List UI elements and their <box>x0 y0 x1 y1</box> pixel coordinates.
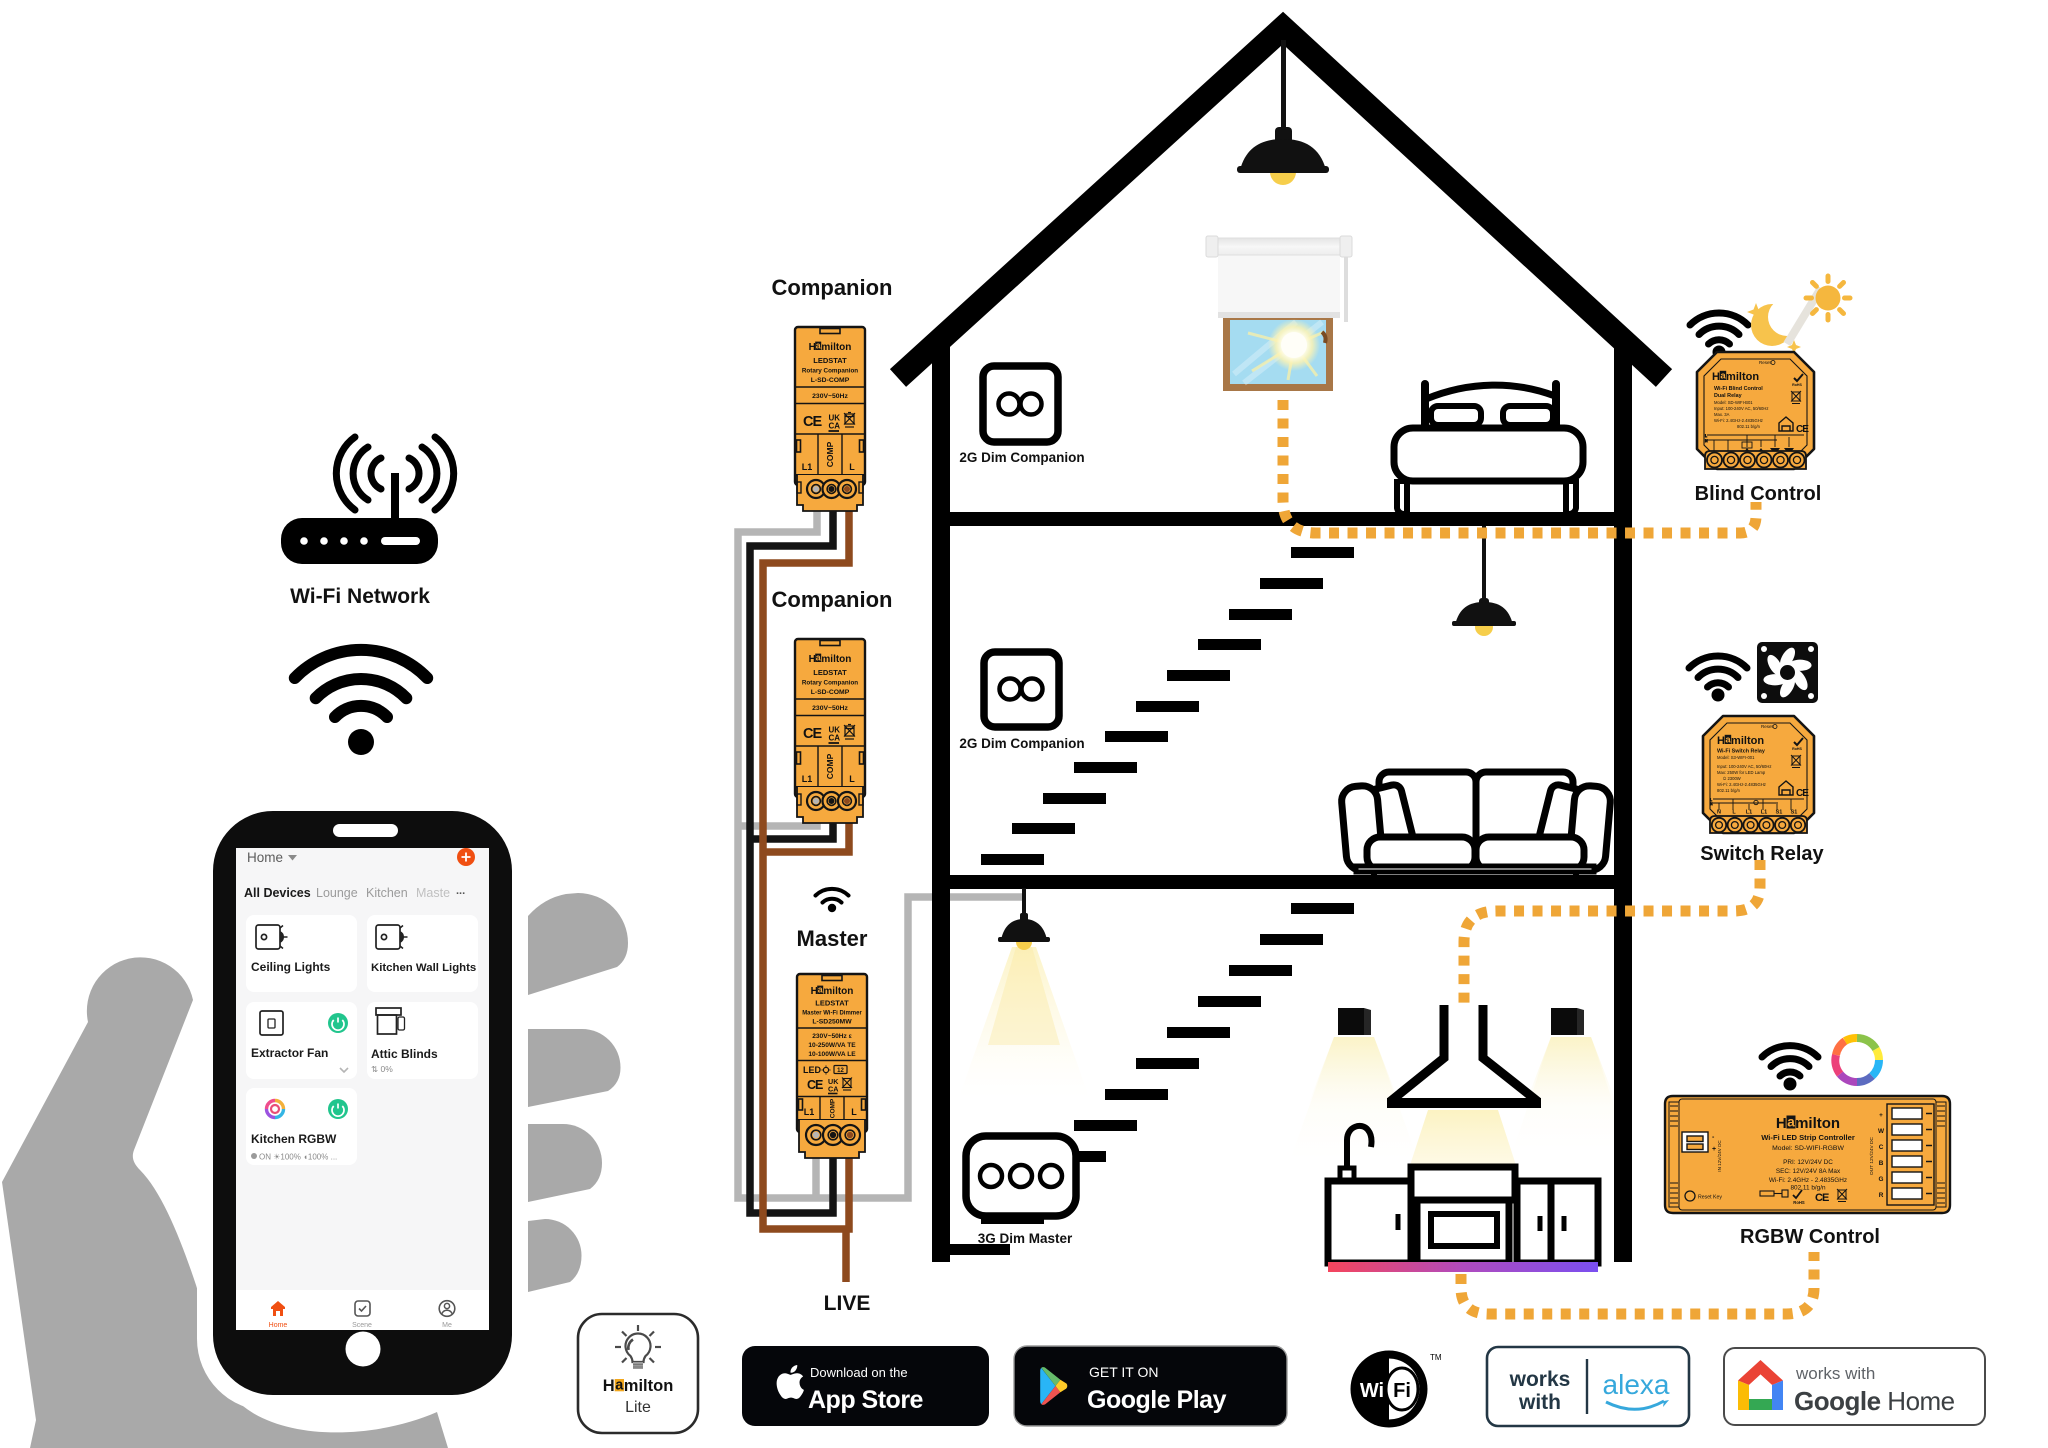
svg-text:⇅ 0%: ⇅ 0% <box>371 1064 393 1074</box>
svg-text:2G Dim Companion: 2G Dim Companion <box>959 450 1084 465</box>
svg-text:PRI: 12V/24V DC: PRI: 12V/24V DC <box>1783 1159 1833 1166</box>
svg-text:10-250W/VA TE: 10-250W/VA TE <box>808 1042 856 1049</box>
svg-text:L1: L1 <box>1761 810 1767 816</box>
svg-text:Ceiling Lights: Ceiling Lights <box>251 960 331 974</box>
svg-text:alexa: alexa <box>1603 1369 1670 1400</box>
svg-text:Model: SD-WIFI-RGBW: Model: SD-WIFI-RGBW <box>1772 1145 1844 1152</box>
svg-text:Wi-Fi Network: Wi-Fi Network <box>290 585 430 608</box>
svg-text:LEDSTAT: LEDSTAT <box>813 668 847 677</box>
svg-text:works with: works with <box>1795 1364 1875 1383</box>
svg-text:Model: S3-WIFI-001: Model: S3-WIFI-001 <box>1717 755 1755 760</box>
svg-text:L1: L1 <box>802 774 813 784</box>
svg-text:Input: 100-240V AC, 50/60Hz: Input: 100-240V AC, 50/60Hz <box>1717 764 1771 769</box>
svg-text:2G Dim Companion: 2G Dim Companion <box>959 736 1084 751</box>
svg-text:CE: CE <box>803 414 822 430</box>
svg-text:Input: 100-240V AC, 50/60Hz: Input: 100-240V AC, 50/60Hz <box>1714 406 1768 411</box>
svg-text:All Devices: All Devices <box>244 886 311 900</box>
svg-text:a: a <box>1725 734 1731 745</box>
svg-text:R: R <box>1879 1192 1884 1199</box>
svg-text:L: L <box>849 462 855 472</box>
svg-text:CA: CA <box>829 734 841 743</box>
svg-text:+: + <box>1879 1112 1883 1119</box>
svg-text:CE: CE <box>1815 1192 1829 1204</box>
svg-text:Scene: Scene <box>352 1322 372 1329</box>
svg-text:L: L <box>1705 434 1707 438</box>
svg-text:230V~50Hz: 230V~50Hz <box>812 393 848 400</box>
svg-text:Max. 3A: Max. 3A <box>1714 412 1730 417</box>
svg-text:+: + <box>1712 1146 1716 1153</box>
svg-text:S1: S1 <box>1776 810 1783 816</box>
svg-text:...: ... <box>456 885 465 897</box>
svg-text:Maste: Maste <box>416 886 450 900</box>
svg-text:Wi-Fi LED Strip Controller: Wi-Fi LED Strip Controller <box>1761 1133 1855 1142</box>
svg-text:CE: CE <box>1796 788 1809 799</box>
svg-text:LEDSTAT: LEDSTAT <box>813 356 847 365</box>
svg-text:Google Play: Google Play <box>1087 1386 1227 1414</box>
svg-text:COMP: COMP <box>830 1098 837 1118</box>
svg-text:LIVE: LIVE <box>824 1292 871 1315</box>
svg-text:Kitchen RGBW: Kitchen RGBW <box>251 1132 337 1146</box>
svg-text:L-SD250MW: L-SD250MW <box>812 1019 852 1026</box>
svg-text:RoHS: RoHS <box>1792 383 1802 387</box>
svg-text:G: G <box>1879 1176 1884 1183</box>
svg-text:a: a <box>1720 370 1726 381</box>
svg-text:Attic Blinds: Attic Blinds <box>371 1047 438 1061</box>
svg-text:W: W <box>1878 1128 1885 1135</box>
svg-text:3G Dim Master: 3G Dim Master <box>978 1231 1073 1246</box>
svg-text:a: a <box>816 653 821 663</box>
svg-text:Companion: Companion <box>772 275 893 300</box>
svg-text:Kitchen Wall Lights: Kitchen Wall Lights <box>371 962 476 974</box>
svg-text:Rotary Companion: Rotary Companion <box>802 680 858 687</box>
svg-text:Lite: Lite <box>625 1399 651 1416</box>
svg-text:L1: L1 <box>804 1107 815 1117</box>
svg-text:Master: Master <box>797 926 868 951</box>
svg-text:802.11 b/g/n: 802.11 b/g/n <box>1790 1185 1826 1192</box>
svg-text:Kitchen: Kitchen <box>366 886 408 900</box>
svg-text:Reset Key: Reset Key <box>1698 1195 1722 1201</box>
svg-text:COMP: COMP <box>825 441 835 467</box>
svg-text:Reset: Reset <box>1759 360 1772 365</box>
svg-text:L: L <box>851 1107 857 1117</box>
svg-text:Hamilton: Hamilton <box>1712 371 1759 383</box>
svg-text:Wi-Fi: 2.4GHz-2.4835GHz: Wi-Fi: 2.4GHz-2.4835GHz <box>1717 782 1766 787</box>
svg-text:a: a <box>1787 1115 1795 1130</box>
svg-text:ON ☀100% ◖100% ...: ON ☀100% ◖100% ... <box>259 1153 337 1162</box>
svg-text:CA: CA <box>828 1085 838 1094</box>
svg-text:with: with <box>1518 1391 1561 1414</box>
svg-text:CE: CE <box>803 726 822 742</box>
svg-text:N: N <box>1717 810 1721 816</box>
svg-text:Lounge: Lounge <box>316 886 358 900</box>
svg-text:LED: LED <box>803 1065 822 1075</box>
svg-text:IN 12V/24V DC: IN 12V/24V DC <box>1717 1140 1722 1172</box>
svg-text:802.11 b/g/n: 802.11 b/g/n <box>1737 424 1761 429</box>
svg-text:L1: L1 <box>802 462 813 472</box>
svg-text:⏻ 2300W: ⏻ 2300W <box>1723 776 1741 781</box>
svg-text:B: B <box>1879 1160 1884 1167</box>
svg-text:L-SD-COMP: L-SD-COMP <box>811 689 850 696</box>
svg-text:TM: TM <box>1430 1353 1442 1362</box>
svg-text:Wi-Fi: 2.4GHz-2.4835GHz: Wi-Fi: 2.4GHz-2.4835GHz <box>1714 418 1763 423</box>
svg-text:LEDSTAT: LEDSTAT <box>815 999 849 1008</box>
svg-text:Google Home: Google Home <box>1794 1386 1955 1416</box>
svg-text:Master Wi-Fi Dimmer: Master Wi-Fi Dimmer <box>802 1011 862 1017</box>
svg-text:CA: CA <box>829 422 841 431</box>
svg-text:GET IT ON: GET IT ON <box>1089 1364 1159 1380</box>
svg-text:12: 12 <box>837 1068 844 1074</box>
svg-text:L-SD-COMP: L-SD-COMP <box>811 377 850 384</box>
svg-text:230V~50Hz: 230V~50Hz <box>812 705 848 712</box>
svg-text:Max: 250W for LED Lamp: Max: 250W for LED Lamp <box>1717 770 1766 775</box>
svg-text:works: works <box>1509 1368 1571 1391</box>
svg-text:Switch Relay: Switch Relay <box>1700 843 1824 865</box>
svg-text:Fi: Fi <box>1393 1380 1411 1402</box>
svg-text:L1: L1 <box>1746 810 1752 816</box>
svg-text:CE: CE <box>1796 424 1809 435</box>
svg-text:Wi-Fi: 2.4GHz - 2.4835GHz: Wi-Fi: 2.4GHz - 2.4835GHz <box>1769 1177 1847 1184</box>
svg-text:a: a <box>816 341 821 351</box>
svg-text:COMP: COMP <box>825 753 835 779</box>
svg-text:C: C <box>1879 1144 1884 1151</box>
svg-text:Extractor Fan: Extractor Fan <box>251 1046 328 1060</box>
svg-text:Dual Relay: Dual Relay <box>1714 393 1742 399</box>
svg-text:RGBW Control: RGBW Control <box>1740 1226 1880 1248</box>
svg-text:L: L <box>849 774 855 784</box>
svg-text:Wi: Wi <box>1360 1380 1384 1402</box>
svg-text:Companion: Companion <box>772 587 893 612</box>
svg-text:230V~50Hz ε: 230V~50Hz ε <box>812 1033 852 1040</box>
svg-text:S1: S1 <box>1791 810 1798 816</box>
svg-text:10-100W/VA LE: 10-100W/VA LE <box>808 1051 856 1058</box>
svg-text:App Store: App Store <box>808 1386 924 1414</box>
svg-text:RoHS: RoHS <box>1793 1200 1805 1205</box>
svg-text:RoHS: RoHS <box>1792 747 1802 751</box>
svg-text:OUT 12V/24V DC: OUT 12V/24V DC <box>1869 1136 1875 1175</box>
svg-text:Me: Me <box>442 1322 452 1329</box>
svg-text:Home: Home <box>247 850 283 865</box>
svg-text:Hamilton: Hamilton <box>1776 1115 1840 1132</box>
svg-text:SEC: 12V/24V 8A Max: SEC: 12V/24V 8A Max <box>1776 1168 1841 1175</box>
svg-text:Hamilton: Hamilton <box>603 1377 674 1395</box>
svg-text:802.11 b/g/n: 802.11 b/g/n <box>1717 788 1741 793</box>
svg-text:Download on the: Download on the <box>810 1365 908 1380</box>
svg-text:Rotary Companion: Rotary Companion <box>802 368 858 375</box>
svg-text:CE: CE <box>807 1078 823 1092</box>
svg-text:Reset: Reset <box>1761 724 1774 729</box>
svg-text:Hamilton: Hamilton <box>1717 735 1764 747</box>
svg-text:Model: SD-WIFI-B01: Model: SD-WIFI-B01 <box>1714 400 1753 405</box>
svg-text:Home: Home <box>269 1322 288 1329</box>
svg-text:Wi-Fi Blind Control: Wi-Fi Blind Control <box>1714 386 1763 392</box>
svg-text:Blind Control: Blind Control <box>1695 483 1822 505</box>
svg-text:Wi-Fi Switch Relay: Wi-Fi Switch Relay <box>1717 749 1765 755</box>
svg-text:a: a <box>818 985 823 995</box>
svg-text:a: a <box>615 1377 624 1393</box>
